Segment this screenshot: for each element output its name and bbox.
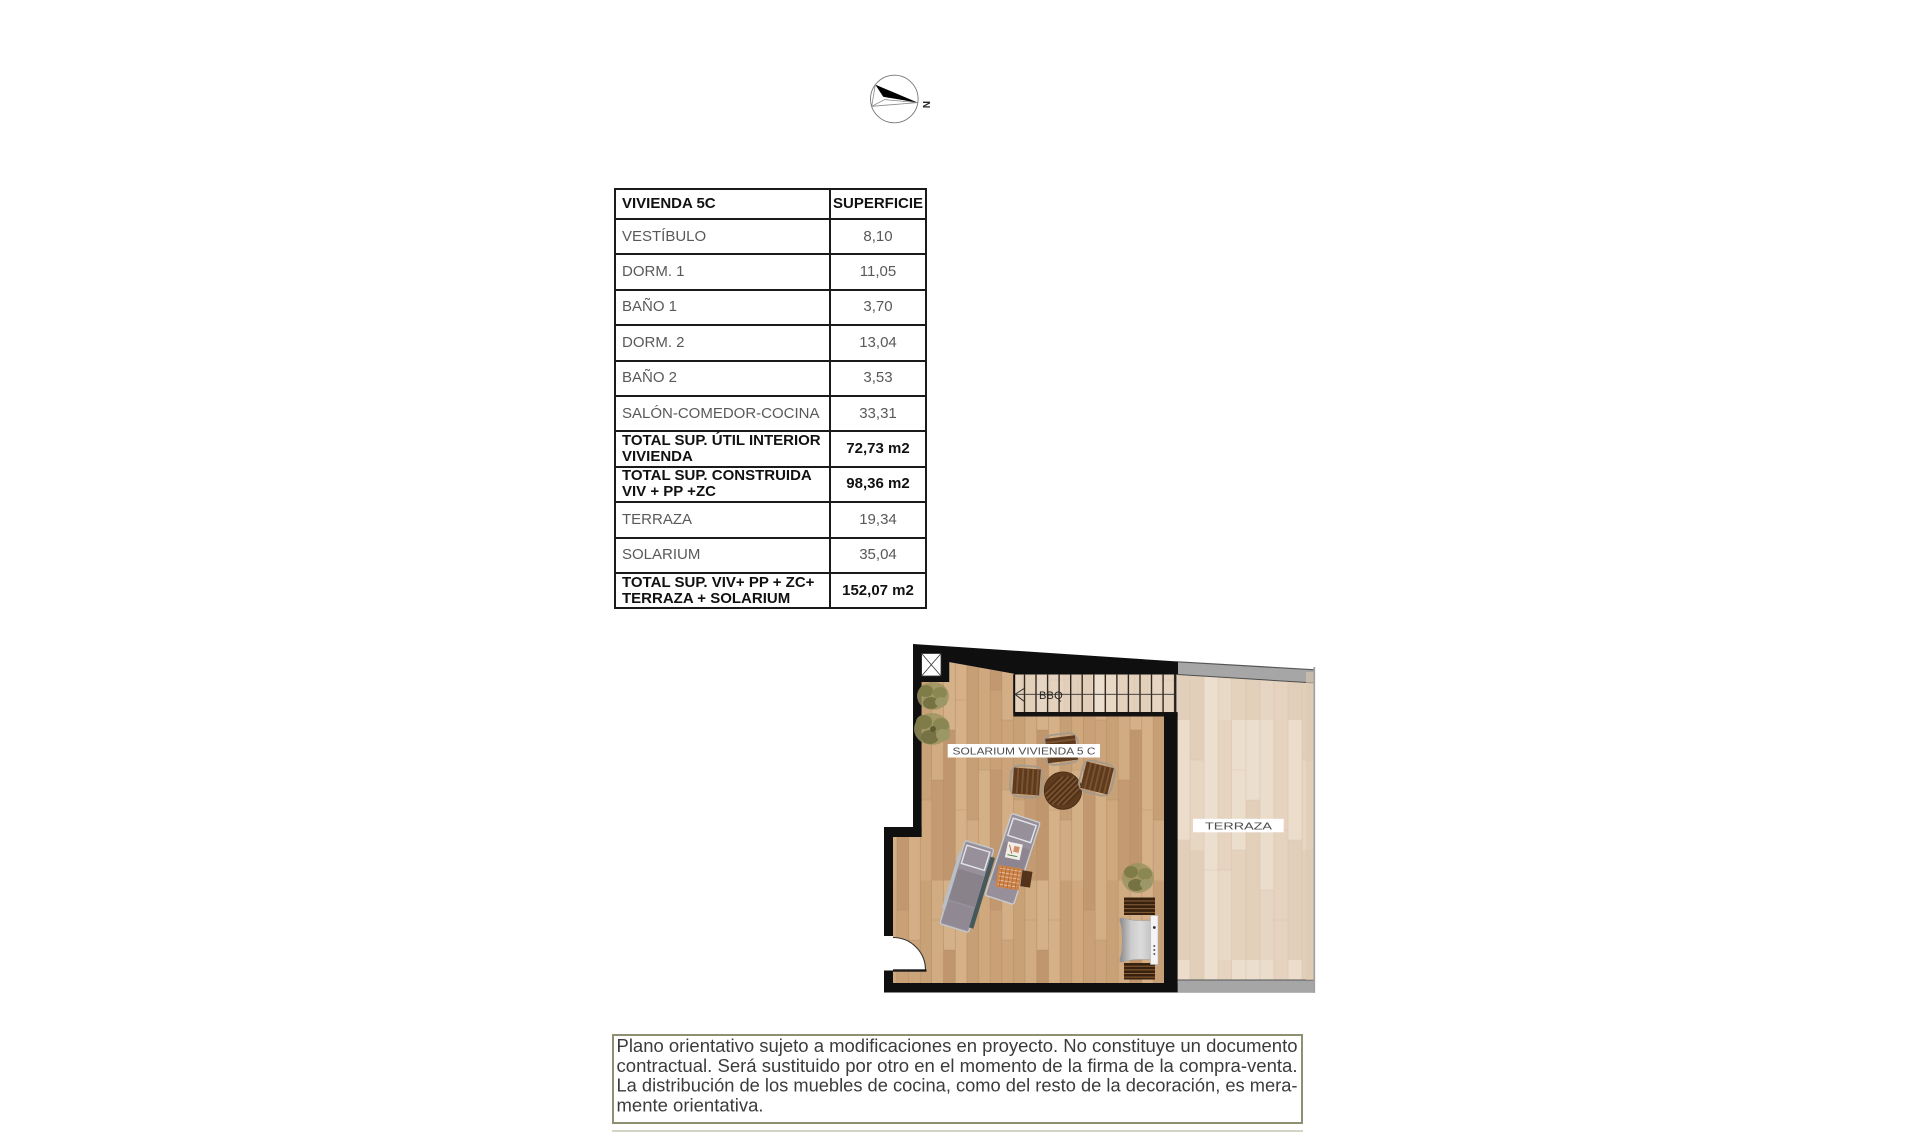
svg-text:N: N: [920, 101, 931, 108]
svg-text:La distribución de los muebles: La distribución de los muebles de cocina…: [617, 1075, 1298, 1096]
svg-text:TERRAZA: TERRAZA: [1205, 822, 1272, 833]
svg-text:contractual. Será sustituido p: contractual. Será sustituido por otro en…: [617, 1055, 1298, 1076]
svg-text:mente orientativa.: mente orientativa.: [617, 1094, 764, 1115]
svg-text:BBQ: BBQ: [1039, 690, 1063, 702]
svg-text:Plano orientativo sujeto a mod: Plano orientativo sujeto a modificacione…: [617, 1035, 1298, 1056]
svg-text:SOLARIUM VIVIENDA 5 C: SOLARIUM VIVIENDA 5 C: [953, 747, 1096, 758]
